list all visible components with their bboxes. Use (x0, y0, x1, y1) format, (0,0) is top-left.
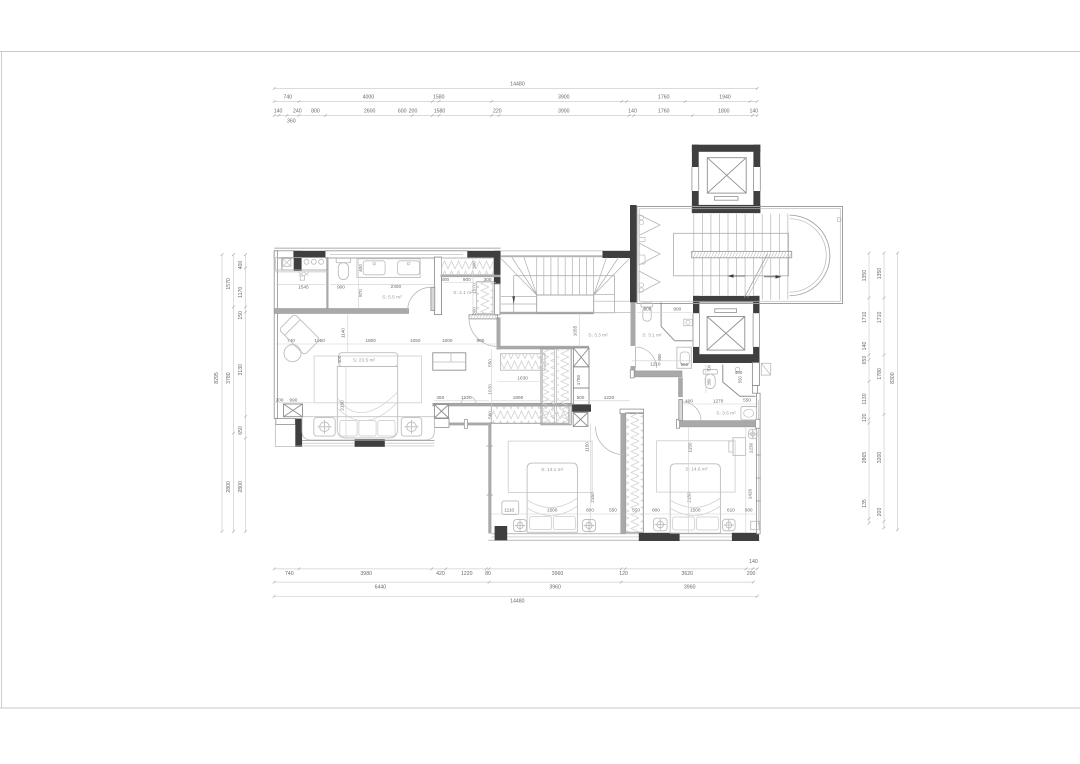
svg-text:S: 3.3 m²: S: 3.3 m² (588, 333, 608, 339)
svg-text:S: 2.1 m²: S: 2.1 m² (453, 290, 473, 296)
svg-text:650: 650 (238, 426, 244, 435)
svg-text:2800: 2800 (226, 481, 232, 493)
svg-text:400: 400 (337, 355, 342, 363)
svg-text:700: 700 (707, 364, 712, 372)
svg-text:300: 300 (441, 277, 449, 282)
svg-text:3900: 3900 (558, 95, 570, 101)
svg-text:600: 600 (398, 109, 407, 115)
svg-text:200: 200 (877, 508, 883, 517)
svg-text:400: 400 (685, 399, 693, 404)
svg-text:S: 14.6 m²: S: 14.6 m² (685, 467, 708, 473)
svg-text:3620: 3620 (682, 571, 694, 577)
svg-text:2865: 2865 (862, 452, 868, 464)
svg-text:500: 500 (577, 395, 585, 400)
svg-text:1580: 1580 (434, 109, 446, 115)
svg-text:240: 240 (293, 109, 302, 115)
svg-text:S: 23.5 m²: S: 23.5 m² (353, 358, 376, 364)
svg-text:800: 800 (644, 307, 652, 312)
svg-text:490: 490 (735, 370, 743, 375)
svg-text:140: 140 (628, 109, 637, 115)
svg-text:1420: 1420 (747, 488, 752, 499)
svg-text:1710: 1710 (862, 312, 868, 324)
svg-text:4000: 4000 (363, 95, 375, 101)
svg-text:650: 650 (862, 356, 868, 365)
svg-text:1630: 1630 (517, 376, 528, 381)
svg-text:1545: 1545 (298, 285, 309, 290)
svg-text:1270: 1270 (713, 399, 724, 404)
svg-text:14480: 14480 (510, 82, 525, 88)
svg-text:1890: 1890 (513, 395, 524, 400)
svg-text:3980: 3980 (360, 571, 372, 577)
svg-text:150: 150 (238, 311, 244, 320)
svg-text:1500: 1500 (547, 508, 558, 513)
svg-text:1220: 1220 (604, 395, 615, 400)
svg-text:S: 3.6 m²: S: 3.6 m² (716, 411, 736, 417)
svg-text:1230: 1230 (748, 442, 753, 453)
svg-text:800: 800 (652, 508, 660, 513)
svg-text:1350: 1350 (862, 270, 868, 282)
svg-text:900: 900 (337, 285, 345, 290)
svg-text:1500: 1500 (690, 508, 701, 513)
svg-text:800: 800 (586, 508, 594, 513)
svg-text:1220: 1220 (461, 571, 473, 577)
svg-text:3200: 3200 (877, 452, 883, 464)
svg-text:400: 400 (238, 261, 244, 270)
svg-text:300: 300 (471, 307, 476, 315)
svg-text:140: 140 (749, 109, 758, 115)
svg-text:200: 200 (276, 398, 284, 403)
svg-text:3900: 3900 (558, 109, 570, 115)
svg-text:1800: 1800 (718, 109, 730, 115)
svg-text:6440: 6440 (375, 584, 387, 590)
svg-text:8300: 8300 (890, 372, 896, 384)
svg-text:900: 900 (463, 277, 471, 282)
svg-text:3780: 3780 (226, 372, 232, 384)
svg-text:550: 550 (609, 508, 617, 513)
svg-text:1140: 1140 (341, 328, 346, 338)
svg-text:1760: 1760 (658, 109, 670, 115)
svg-text:300: 300 (484, 277, 492, 282)
svg-text:2600: 2600 (364, 109, 376, 115)
svg-text:1760: 1760 (658, 95, 670, 101)
svg-text:1940: 1940 (719, 95, 731, 101)
svg-text:1800: 1800 (365, 338, 376, 343)
svg-text:14480: 14480 (510, 599, 525, 605)
svg-text:1130: 1130 (862, 393, 868, 404)
svg-text:610: 610 (727, 508, 735, 513)
svg-text:300: 300 (471, 261, 476, 269)
svg-text:1050: 1050 (410, 338, 421, 343)
svg-text:120: 120 (619, 571, 628, 577)
svg-text:200: 200 (747, 571, 756, 577)
svg-text:2150: 2150 (340, 400, 345, 411)
svg-text:2800: 2800 (238, 481, 244, 493)
svg-text:3960: 3960 (549, 584, 561, 590)
svg-text:3130: 3130 (238, 364, 244, 376)
svg-text:1570: 1570 (226, 278, 232, 290)
svg-text:140: 140 (749, 559, 758, 565)
svg-text:740: 740 (283, 95, 292, 101)
svg-text:S: 3.1 m²: S: 3.1 m² (642, 333, 662, 339)
svg-text:550: 550 (738, 376, 743, 384)
svg-text:1580: 1580 (433, 95, 445, 101)
svg-text:3960: 3960 (552, 571, 564, 577)
svg-text:80: 80 (485, 571, 491, 577)
svg-text:800: 800 (311, 109, 320, 115)
svg-text:1110: 1110 (504, 508, 514, 513)
svg-text:360: 360 (287, 119, 296, 125)
svg-text:1150: 1150 (585, 442, 590, 452)
svg-text:2150: 2150 (687, 492, 692, 503)
svg-text:550: 550 (681, 362, 689, 367)
svg-text:1780: 1780 (576, 374, 581, 385)
svg-text:900: 900 (476, 338, 484, 343)
svg-text:S: 13.1 m²: S: 13.1 m² (541, 467, 564, 473)
svg-text:1710: 1710 (877, 312, 883, 324)
svg-text:420: 420 (436, 571, 445, 577)
svg-text:1780: 1780 (877, 368, 883, 380)
svg-text:900: 900 (673, 307, 681, 312)
svg-text:550: 550 (743, 398, 751, 403)
svg-text:200: 200 (409, 109, 418, 115)
svg-text:1350: 1350 (877, 268, 883, 280)
svg-text:850: 850 (657, 353, 662, 361)
svg-text:1050: 1050 (314, 338, 325, 343)
svg-text:1000: 1000 (442, 338, 453, 343)
svg-text:740: 740 (285, 571, 294, 577)
svg-text:S: 5.5 m²: S: 5.5 m² (382, 295, 402, 301)
svg-text:990: 990 (289, 398, 297, 403)
svg-text:8295: 8295 (214, 372, 220, 384)
svg-text:3960: 3960 (684, 584, 696, 590)
svg-text:1210: 1210 (650, 362, 661, 367)
svg-text:120: 120 (862, 413, 868, 422)
svg-text:220: 220 (493, 109, 502, 115)
svg-text:135: 135 (862, 499, 868, 508)
svg-text:140: 140 (862, 342, 868, 351)
svg-text:350: 350 (707, 378, 712, 386)
svg-text:1170: 1170 (238, 287, 244, 298)
svg-text:1055: 1055 (573, 325, 578, 336)
svg-text:450: 450 (436, 395, 444, 400)
svg-text:140: 140 (274, 109, 283, 115)
